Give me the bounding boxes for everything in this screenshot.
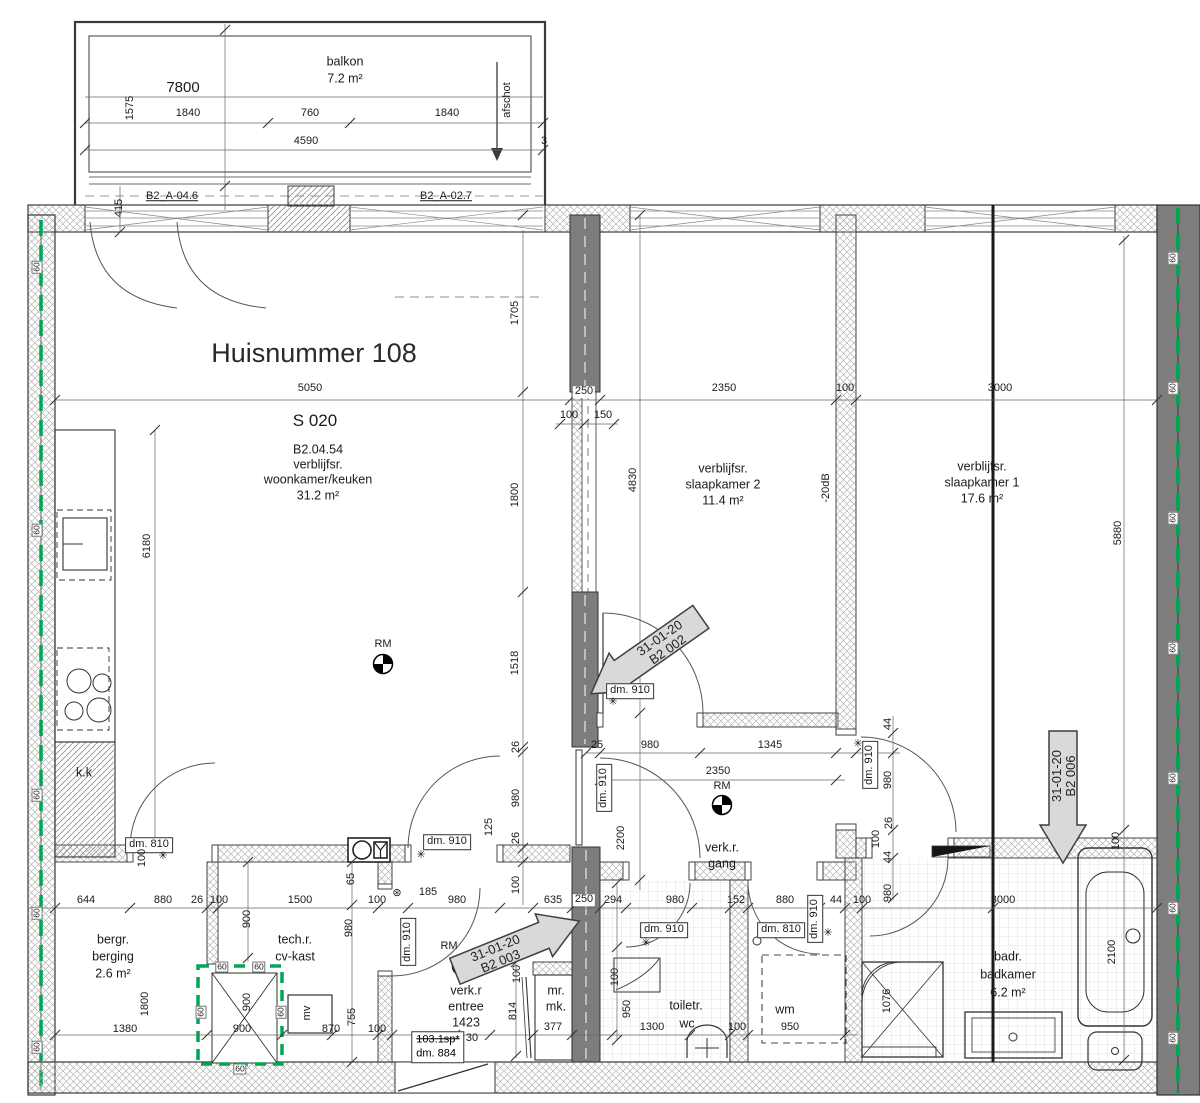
dim-100-bathtub: 100 (1111, 832, 1123, 850)
dim-2350-hall: 2350 (706, 766, 730, 778)
dim-100-window: 100 (560, 410, 578, 422)
svg-text:31-01-20: 31-01-20 (1049, 750, 1064, 802)
bed2-name: slaapkamer 2 (685, 478, 760, 491)
mv-label: mv (302, 1006, 314, 1021)
dim-980-toilet: 980 (666, 895, 684, 907)
wall-60-marker: 60 (1168, 511, 1179, 524)
dim-100-top: 100 (836, 383, 854, 395)
wall-60-marker: 60 (32, 260, 43, 273)
dim-26-c: 26 (884, 817, 896, 829)
berging-area: 2.6 m² (95, 967, 130, 980)
bed1-area: 17.6 m² (961, 492, 1003, 505)
dim-152: 152 (727, 895, 745, 907)
sensor-icon: ✳ (641, 938, 650, 950)
dim-644: 644 (77, 895, 95, 907)
dim-250-wall: 250 (573, 386, 595, 398)
dim-25: 25 (591, 740, 603, 752)
sensor-circle-icon: ⊛ (392, 888, 401, 900)
dim-980-mid: 980 (511, 789, 523, 807)
wall-60-marker: 60 (32, 523, 43, 536)
bed2-area: 11.4 m² (702, 494, 743, 507)
kitchen-block (55, 430, 115, 857)
dim-1840-right: 1840 (435, 108, 459, 120)
closet-label-1: mr. (547, 984, 564, 997)
shaft-60-marker: 60 (276, 1005, 287, 1018)
dim-185: 185 (419, 887, 437, 899)
acoustic-label: -20dB (821, 473, 833, 502)
plan-code: S 020 (293, 412, 337, 430)
tech-name: cv-kast (275, 950, 315, 963)
page-title: Huisnummer 108 (211, 339, 417, 367)
hall-name: gang (708, 857, 736, 870)
bed1-name: slaapkamer 1 (944, 476, 1019, 489)
dim-3: 3 (541, 136, 547, 148)
wall-60-marker: 60 (1168, 901, 1179, 914)
dim-100-mid: 100 (511, 876, 523, 894)
dim-4830: 4830 (628, 468, 640, 492)
rm-label-hall: RM (713, 781, 730, 793)
bed2-type: verblijfsr. (698, 462, 747, 475)
door-tag-910-toilet: dm. 910 (640, 922, 688, 938)
dim-100-b: 100 (368, 895, 386, 907)
front-door-tag: 103.1sp* dm. 884 (411, 1031, 464, 1063)
living-area: 31.2 m² (297, 489, 339, 502)
dim-900-shaft-v: 900 (242, 993, 254, 1011)
dim-250-wall2: 250 (573, 894, 595, 906)
bath-name: badkamer (980, 968, 1036, 981)
dim-5880: 5880 (1113, 521, 1125, 545)
dim-1800-window: 1800 (510, 483, 522, 507)
svg-text:B2 006: B2 006 (1063, 755, 1078, 796)
dim-44-b: 44 (883, 851, 895, 863)
dim-880-wm: 880 (776, 895, 794, 907)
door-tag-910-living: dm. 910 (423, 834, 471, 850)
door-tag-910-hall: dm. 910 (596, 764, 612, 812)
dim-65: 65 (346, 873, 358, 885)
wall-60-marker: 60 (32, 906, 43, 919)
dim-2350-top: 2350 (712, 383, 736, 395)
entree-width: 1423 (452, 1016, 480, 1029)
sensor-icon: ✳ (416, 850, 425, 862)
dim-100-bathwall: 100 (871, 830, 883, 848)
balcony-door-left-tag: B2_A-04.6 (146, 191, 198, 203)
dim-100-d: 100 (368, 1024, 386, 1036)
dim-6180: 6180 (142, 534, 154, 558)
dim-5050: 5050 (298, 383, 322, 395)
floor-plan-drawing: 31-01-20 B2 002 31-01-20 B2 003 31-01-20… (0, 0, 1200, 1103)
sensor-icon: ✳ (853, 739, 862, 751)
dim-1076: 1076 (882, 989, 894, 1013)
dim-1800-berging: 1800 (140, 992, 152, 1016)
door-tag-910-wm2: dm. 910 (807, 895, 823, 943)
dim-980-hall: 980 (641, 740, 659, 752)
dim-900-shaft-h: 900 (233, 1024, 251, 1036)
wall-60-marker: 60 (1168, 381, 1179, 394)
wall-60-marker: 60 (1168, 771, 1179, 784)
dim-44-c: 44 (830, 895, 842, 907)
dim-950-toilet: 950 (622, 1000, 634, 1018)
living-code: B2.04.54 (293, 443, 343, 456)
dim-814: 814 (508, 1002, 520, 1020)
dim-1380: 1380 (113, 1024, 137, 1036)
sensor-icon: ✳ (158, 851, 167, 863)
dim-980-bath: 980 (883, 884, 895, 902)
tech-type: tech.r. (278, 933, 312, 946)
sensor-icon: ✳ (823, 928, 832, 940)
dim-880-berging: 880 (154, 895, 172, 907)
dim-980-entree: 980 (448, 895, 466, 907)
dim-294: 294 (604, 895, 622, 907)
closet-label-2: mk. (546, 1000, 566, 1013)
dim-100-a: 100 (210, 895, 228, 907)
dim-3000-bath: 3000 (991, 895, 1015, 907)
balcony-name: balkon (327, 55, 364, 68)
floor-plan: 31-01-20 B2 002 31-01-20 B2 003 31-01-20… (0, 0, 1200, 1103)
meter-icons (348, 838, 390, 862)
dim-150-window: 150 (594, 410, 612, 422)
dim-3000-top: 3000 (988, 383, 1012, 395)
bath-area: 6.2 m² (990, 986, 1025, 999)
shaft-60-marker: 60 (196, 1005, 207, 1018)
dim-100-c: 100 (853, 895, 871, 907)
sensor-icon: ✳ (608, 697, 617, 709)
dim-2200: 2200 (616, 826, 628, 850)
dim-125: 125 (484, 818, 496, 836)
dim-2100: 2100 (1107, 940, 1119, 964)
hall-type: verk.r. (705, 841, 739, 854)
dim-30: 30 (466, 1033, 478, 1045)
balcony-area: 7.2 m² (327, 72, 362, 85)
door-sensor-dot (753, 937, 761, 945)
door-tag-810-wm: dm. 810 (757, 922, 805, 938)
entree-type: verk.r (450, 984, 481, 997)
dim-100-closet: 100 (512, 965, 524, 983)
door-tag-910-tech: dm. 910 (400, 918, 416, 966)
front-door-code: 103.1sp* (416, 1033, 459, 1047)
toilet-type: toiletr. (669, 999, 702, 1012)
dim-7800: 7800 (166, 80, 199, 96)
shaft-60-marker: 60 (233, 1064, 246, 1075)
dim-980-tech: 980 (344, 919, 356, 937)
middle-wall (570, 215, 600, 1062)
rm-label-living: RM (374, 639, 391, 651)
dim-1345: 1345 (758, 740, 782, 752)
dim-1840-left: 1840 (176, 108, 200, 120)
dim-635: 635 (544, 895, 562, 907)
dim-870: 870 (322, 1024, 340, 1036)
living-type: verblijfsr. (293, 458, 342, 471)
wall-60-marker: 60 (1168, 251, 1179, 264)
wall-60-marker: 60 (32, 788, 43, 801)
shaft-60-marker: 60 (252, 962, 265, 973)
toilet-name: wc (679, 1017, 694, 1030)
bath-type: badr. (994, 950, 1022, 963)
dim-755: 755 (347, 1008, 359, 1026)
dim-980-bed1door: 980 (883, 771, 895, 789)
kitchen-label: k.k (76, 766, 92, 779)
slope-label: afschot (502, 82, 514, 117)
floor-tiles (600, 858, 1157, 1062)
wall-60-marker: 60 (1168, 641, 1179, 654)
dim-100-e: 100 (728, 1022, 746, 1034)
dim-44-a: 44 (883, 718, 895, 730)
dim-900-tech: 900 (242, 910, 254, 928)
dim-1300: 1300 (640, 1022, 664, 1034)
dim-100-toilet: 100 (610, 968, 622, 986)
dim-26-b: 26 (511, 832, 523, 844)
wm-label: wm (775, 1003, 794, 1016)
dim-950-wm: 950 (781, 1022, 799, 1034)
living-name: woonkamer/keuken (264, 473, 372, 486)
dim-760: 760 (301, 108, 319, 120)
dim-1518: 1518 (510, 651, 522, 675)
dim-1575: 1575 (125, 96, 137, 120)
washing-machine-outline (762, 955, 846, 1043)
bed1-type: verblijfsr. (957, 460, 1006, 473)
entree-name: entree (448, 1000, 483, 1013)
dim-415: 415 (114, 199, 126, 217)
wall-60-marker: 60 (32, 1040, 43, 1053)
shaft-60-marker: 60 (215, 962, 228, 973)
berging-name: berging (92, 950, 134, 963)
front-door-size: dm. 884 (416, 1047, 459, 1061)
dim-1500: 1500 (288, 895, 312, 907)
berging-type: bergr. (97, 933, 129, 946)
wall-60-marker: 60 (1168, 1031, 1179, 1044)
dim-100-berging-door: 100 (137, 849, 149, 867)
dim-26-d: 26 (191, 895, 203, 907)
dim-1705: 1705 (510, 301, 522, 325)
balcony-door-right-tag: B2_A-02.7 (420, 191, 472, 203)
dim-377: 377 (544, 1022, 562, 1034)
dim-26-a: 26 (511, 741, 523, 753)
door-tag-910-bed1: dm. 910 (862, 741, 878, 789)
dim-4590: 4590 (294, 136, 318, 148)
rm-label-entree: RM (440, 941, 457, 953)
